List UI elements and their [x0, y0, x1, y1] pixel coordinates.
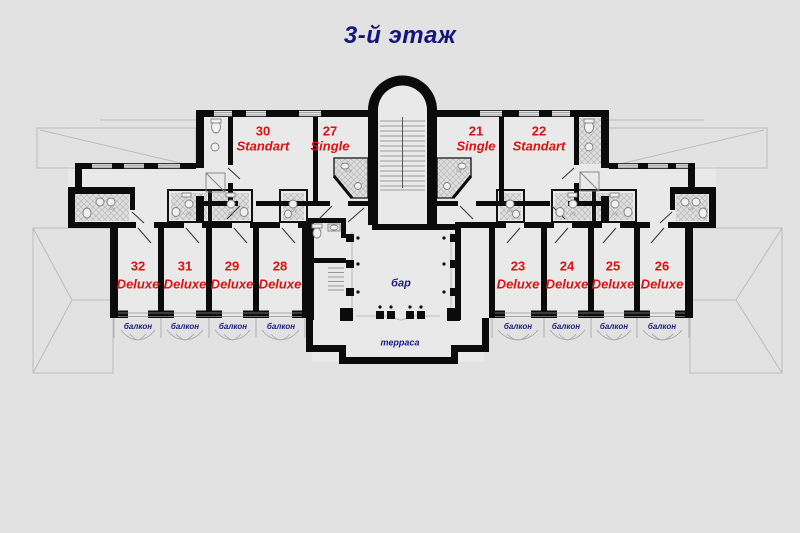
floor-plan-page: 3-й этаж 30 Standart 27 Single 21 Single… — [0, 0, 800, 533]
room-26-type: Deluxe — [641, 278, 684, 291]
wc-label: с/у — [688, 207, 694, 212]
room-21-type: Single — [456, 140, 495, 153]
room-24-number: 24 — [560, 260, 574, 273]
room-28-number: 28 — [273, 260, 287, 273]
room-28-type: Deluxe — [259, 278, 302, 291]
room-24-type: Deluxe — [546, 278, 589, 291]
room-27-number: 27 — [323, 125, 337, 138]
wc-label: с/у — [186, 212, 192, 217]
wc-label: с/у — [612, 212, 618, 217]
balcony-label: балкон — [267, 323, 295, 331]
room-29-type: Deluxe — [211, 278, 254, 291]
room-32-number: 32 — [131, 260, 145, 273]
room-30-number: 30 — [256, 125, 270, 138]
room-32-type: Deluxe — [117, 278, 160, 291]
room-23-number: 23 — [511, 260, 525, 273]
balcony-label: балкон — [504, 323, 532, 331]
balcony-label: балкон — [552, 323, 580, 331]
room-30-type: Standart — [237, 140, 290, 153]
wc-label: с/у — [291, 209, 297, 214]
balcony-label: балкон — [171, 323, 199, 331]
room-21-number: 21 — [469, 125, 483, 138]
room-26-number: 26 — [655, 260, 669, 273]
room-25-type: Deluxe — [592, 278, 635, 291]
wc-label: с/у — [507, 209, 513, 214]
wc-label: с/у — [109, 207, 115, 212]
room-27-type: Single — [310, 140, 349, 153]
bar-label: бар — [391, 279, 411, 290]
terrace-label: терраса — [381, 339, 420, 348]
room-22-number: 22 — [532, 125, 546, 138]
room-31-number: 31 — [178, 260, 192, 273]
wc-label: с/у — [346, 169, 352, 174]
balcony-label: балкон — [124, 323, 152, 331]
wc-label: с/у — [456, 169, 462, 174]
wc-label: с/у — [570, 212, 576, 217]
balcony-label: балкон — [219, 323, 247, 331]
room-31-type: Deluxe — [164, 278, 207, 291]
wc-label: с/у — [228, 212, 234, 217]
page-title: 3-й этаж — [344, 24, 456, 48]
room-23-type: Deluxe — [497, 278, 540, 291]
room-29-number: 29 — [225, 260, 239, 273]
room-22-type: Standart — [513, 140, 566, 153]
room-25-number: 25 — [606, 260, 620, 273]
balcony-label: балкон — [600, 323, 628, 331]
balcony-label: балкон — [648, 323, 676, 331]
floor-plan-drawing — [0, 0, 800, 533]
